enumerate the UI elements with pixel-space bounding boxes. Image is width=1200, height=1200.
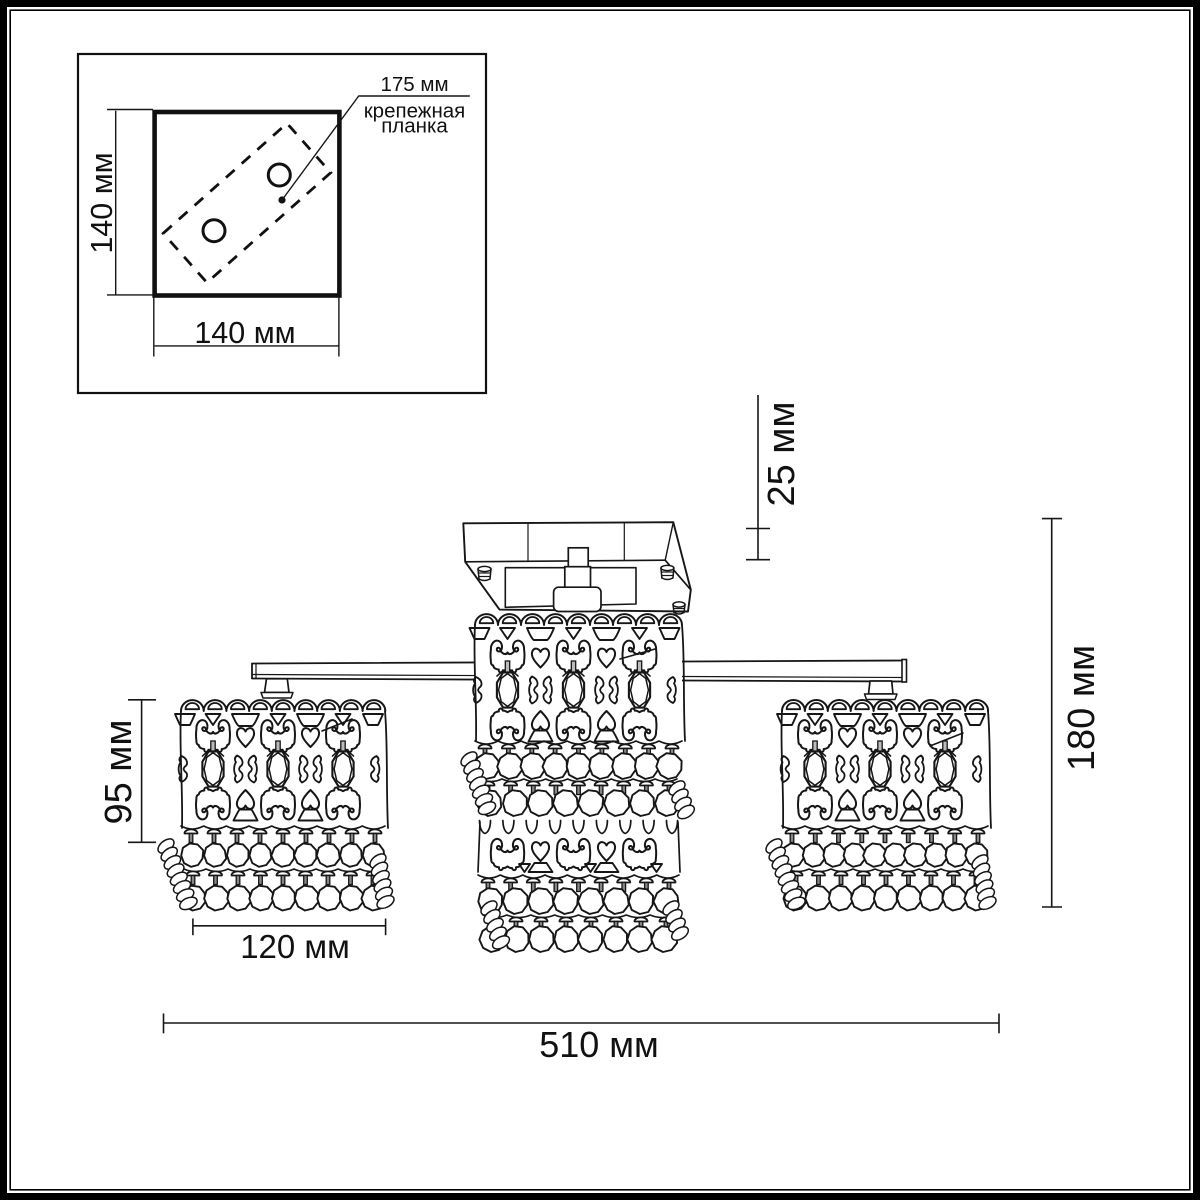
svg-text:95 мм: 95 мм — [98, 719, 140, 824]
svg-text:180 мм: 180 мм — [1061, 645, 1103, 771]
svg-text:140 мм: 140 мм — [194, 316, 295, 350]
svg-text:175 мм: 175 мм — [380, 73, 448, 96]
svg-text:510 мм: 510 мм — [539, 1024, 659, 1065]
svg-text:планка: планка — [381, 115, 448, 138]
svg-text:140 мм: 140 мм — [85, 152, 119, 253]
svg-text:25 мм: 25 мм — [761, 401, 803, 506]
svg-text:120 мм: 120 мм — [240, 928, 350, 965]
